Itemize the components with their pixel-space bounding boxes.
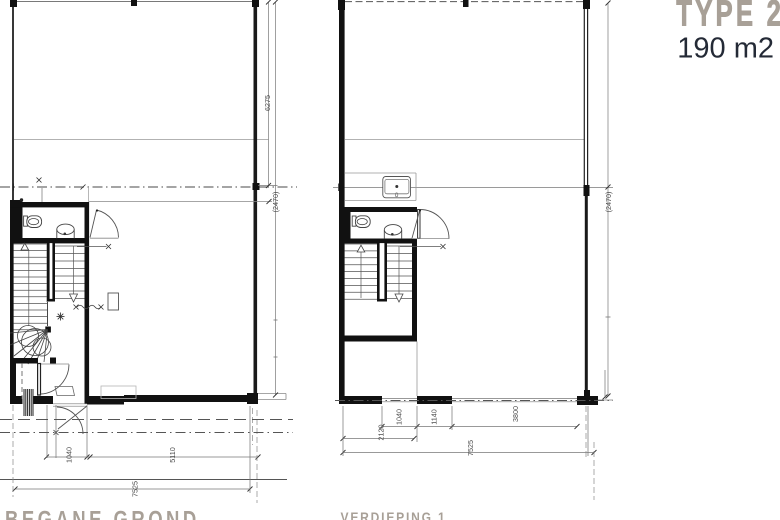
svg-text:1040: 1040 (395, 409, 404, 425)
svg-text:1140: 1140 (430, 409, 439, 424)
svg-text:2120: 2120 (377, 425, 386, 441)
svg-text:6275: 6275 (263, 95, 272, 111)
svg-text:1040: 1040 (65, 447, 74, 463)
svg-text:7525: 7525 (466, 440, 475, 456)
svg-text:(2470): (2470) (604, 192, 613, 213)
svg-text:190 m2: 190 m2 (677, 32, 774, 64)
svg-text:5110: 5110 (168, 447, 177, 462)
svg-text:(2470): (2470) (271, 192, 280, 213)
svg-text:7525: 7525 (131, 481, 140, 497)
svg-text:3800: 3800 (511, 406, 520, 422)
svg-text:VERDIEPING 1: VERDIEPING 1 (341, 509, 447, 520)
svg-text:BEGANE GROND: BEGANE GROND (5, 506, 200, 520)
svg-text:TYPE 2: TYPE 2 (676, 0, 780, 33)
